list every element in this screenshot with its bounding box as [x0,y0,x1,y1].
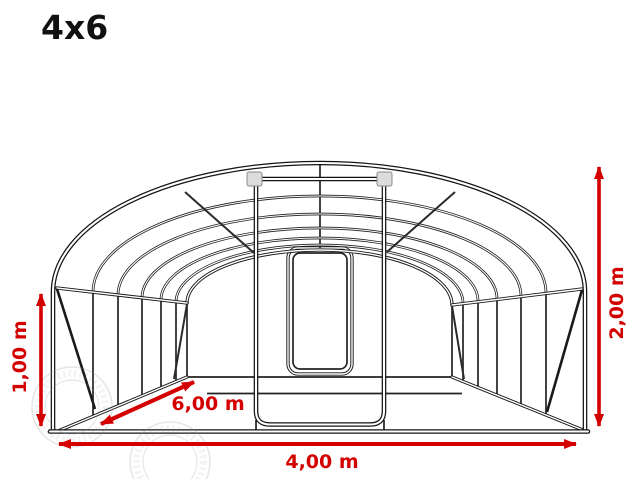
greenhouse-drawing [0,0,639,479]
watermark [32,367,210,479]
header-bracket-right [377,172,392,186]
dim-label-width: 4,00 m [285,451,358,473]
page: 4x6 [0,0,639,479]
eave-rails [57,288,582,305]
wall-brace-front-right [547,290,582,412]
dim-label-ridge-height: 2,00 m [606,266,628,339]
rear-door-inner [293,253,347,369]
wall-brace-front-left [57,289,95,409]
dim-label-length: 6,00 m [171,393,244,415]
header-bracket-left [247,172,262,186]
dim-label-side-height: 1,00 m [9,320,31,393]
rear-door-frame [288,248,352,374]
floor-lines [187,377,462,394]
